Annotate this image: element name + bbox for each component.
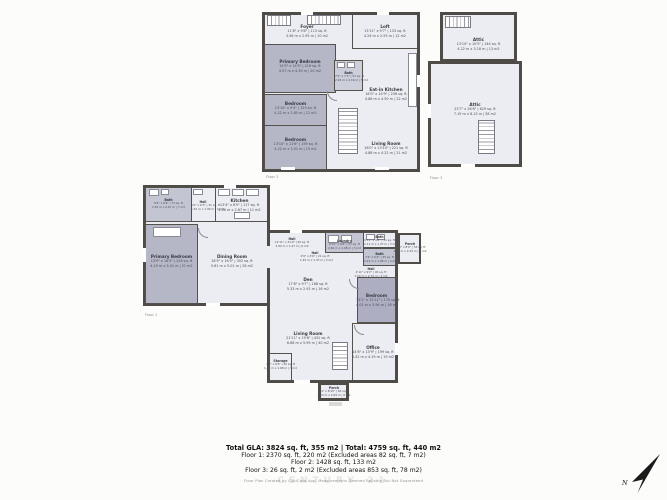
kitchen-appliance [246,189,259,196]
summary-floor1-line: Floor 1: 2370 sq. ft, 220 m2 (Excluded a… [0,452,667,459]
interior-wall [146,221,267,222]
window-marker [417,75,420,87]
staircase [445,16,471,28]
room-label-floor1-entry-porch: Porch 6'10" x 8'0" | 55 sq. ft 2.08 m x … [391,242,429,253]
room-label-floor1-storage: Storage 4'8" x 6'6" | 30 sq. ft 1.42 m x… [263,359,298,370]
area-summary: Total GLA: 3824 sq. ft, 355 m2 | Total: … [0,444,667,474]
door-arc [198,228,208,238]
bath-fixture [347,62,355,68]
room-label-floor1-living-room: Living Room 21'11" x 19'8" | 431 sq. ft … [278,331,338,345]
room-label-floor2-bedroom-b: Bedroom 13'10" x 11'6" | 159 sq. ft 4.22… [267,137,324,151]
floor2-caption: Floor 2 [266,175,278,179]
room-label-floor1-bath-left: Bath 8'4" x 8'9" | 73 sq. ft 2.54 m x 2.… [146,198,191,209]
room-label-floor1-den: Den 17'6" x 9'7" | 168 sq. ft 5.33 m x 2… [278,277,338,291]
window-marker [301,12,313,15]
kitchen-appliance [218,189,230,196]
window-marker [294,380,310,384]
window-marker [375,167,389,170]
room-label-floor1-primary-bedroom: Primary Bedroom 13'9" x 16'5" | 226 sq. … [146,254,197,268]
room-label-floor2-primary-bedroom: Primary Bedroom 15'0" x 14'5" | 216 sq. … [267,59,333,73]
interior-wall [352,323,395,324]
room-label-floor2-living-room: Living Room 16'0" x 13'10" | 221 sq. ft … [357,141,415,155]
compass-north-indicator: N [620,452,664,494]
room-label-floor3-attic-lower: Attic 23'7" x 26'8" | 629 sq. ft 7.19 m … [435,102,515,116]
door-arc [354,325,364,335]
room-label-floor2-bath: Bath 7'5" x 7'1" | 53 sq. ft 2.26 m x 2.… [335,71,362,82]
attic-ladder [478,120,495,154]
room-label-floor2-loft: Loft 13'11" x 9'7" | 133 sq. ft 4.24 m x… [355,24,415,38]
room-label-floor2-eat-in-kitchen: Eat-in Kitchen 16'0" x 14'9" | 236 sq. f… [357,87,415,101]
floor3-caption: Floor 3 [430,176,442,180]
room-label-floor1-porch: Porch 7'4" x 8'10" | 65 sq. ft 2.24 m x … [313,386,355,397]
room-label-floor1-laundry: Laundry 8'10" x 6'6" | 57 sq. ft 2.69 m … [326,239,363,250]
room-label-floor1-dining-room: Dining Room 18'5" x 16'5" | 302 sq. ft 5… [197,254,267,268]
summary-floor3-line: Floor 3: 26 sq. ft, 2 m2 (Excluded areas… [0,467,667,474]
window-marker [224,185,236,188]
floorplan-page: Foyer 11'8" x 9'8" | 113 sq. ft 3.56 m x… [0,0,667,500]
window-marker [206,303,220,306]
floor1-plan-right: Hall 12'11" x 4'10" | 62 sq. ft 3.94 m x… [267,230,398,383]
floor1-plan-left: Bath 8'4" x 8'9" | 73 sq. ft 2.54 m x 2.… [143,185,270,306]
interior-wall [352,15,353,49]
floor3-plan-upper: Attic 13'10" x 10'5" | 144 sq. ft 4.22 m… [440,12,517,62]
compass-n-label: N [622,479,628,487]
floor1-porch: Porch 7'4" x 8'10" | 65 sq. ft 2.24 m x … [318,382,349,401]
porch-step [329,402,342,406]
kitchen-island [234,212,250,219]
room-label-floor1-kitchen: Kitchen 13'4" x 8'9" | 117 sq. ft 4.06 m… [212,198,267,212]
interior-wall [352,48,417,49]
kitchen-appliance [232,189,244,196]
summary-total-line: Total GLA: 3824 sq. ft, 355 m2 | Total: … [0,444,667,452]
room-label-floor1-hall-center: Hall 12'11" x 4'10" | 62 sq. ft 3.94 m x… [270,237,314,248]
floor2-plan: Foyer 11'8" x 9'8" | 113 sq. ft 3.56 m x… [262,12,420,172]
door-arc [327,91,337,101]
summary-floor2-line: Floor 2: 1428 sq. ft, 133 m2 [0,459,667,466]
floor3-plan-lower: Attic 23'7" x 26'8" | 629 sq. ft 7.19 m … [428,61,522,167]
bath-fixture [149,189,159,196]
window-marker [377,12,389,15]
room-label-floor1-office: Office 14'6" x 13'9" | 199 sq. ft 4.42 m… [346,345,400,359]
room-label-floor2-bedroom-a: Bedroom 13'10" x 9'4" | 129 sq. ft 4.22 … [267,101,324,115]
door-arc [349,279,359,289]
floor1-caption: Floor 1 [145,313,157,317]
room-label-floor1-bedroom: Bedroom 13'2" x 12'11" | 170 sq. ft 4.01… [356,293,397,307]
room-label-floor2-foyer: Foyer 11'8" x 9'8" | 113 sq. ft 3.56 m x… [275,24,339,38]
room-label-floor1-hall-right: Hall 4'11" x 9'2" | 45 sq. ft 1.50 m x 2… [352,267,390,278]
bath-fixture [337,62,345,68]
disclaimer-text: Floor Plan Created by CubiCasa App, Meas… [0,479,667,483]
closet [193,189,203,195]
room-label-floor3-attic-upper: Attic 13'10" x 10'5" | 144 sq. ft 4.22 m… [444,37,513,51]
closet [153,227,181,237]
window-marker [428,104,431,118]
bath-fixture [161,189,169,195]
north-arrow-icon [620,452,664,494]
window-marker [461,164,475,167]
window-marker [290,230,302,233]
floor1-entry-porch: Porch 6'10" x 8'0" | 55 sq. ft 2.08 m x … [398,233,421,264]
window-marker [281,167,295,170]
staircase [338,108,358,154]
room-label-floor1-hall-small: Hall 4'9" x 4'6" | 21 sq. ft 1.45 m x 1.… [300,251,330,262]
room-label-floor1-bath-mid: Bath 7'4" x 6'2" | 45 sq. ft 2.24 m x 1.… [364,252,395,263]
